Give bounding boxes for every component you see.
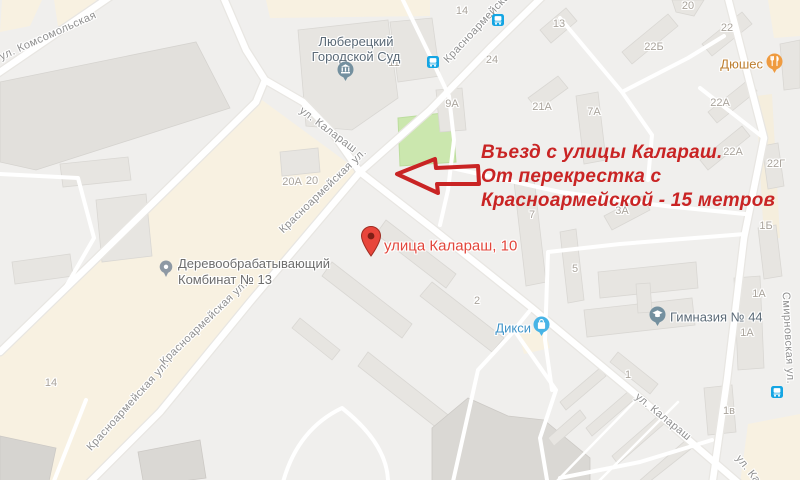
restaurant-poi-icon[interactable] (766, 53, 783, 79)
building-label: 9А (445, 98, 458, 110)
school-poi-icon[interactable] (649, 306, 666, 332)
poi-court-line1: Люберецкий (312, 34, 401, 49)
shopping-poi-icon[interactable] (533, 316, 550, 342)
bus-stop-icon[interactable] (492, 13, 504, 31)
building-label: 2 (474, 295, 480, 307)
building-label: 20 (682, 0, 694, 12)
building-label: 24 (486, 54, 498, 66)
entrance-annotation-line2: От перекрестка с (481, 165, 775, 189)
bus-stop-icon[interactable] (427, 55, 439, 73)
building-label: 7А (587, 106, 600, 118)
building-label: 20А (282, 176, 302, 188)
poi-label-court[interactable]: Люберецкий Городской Суд (312, 34, 401, 64)
map-canvas[interactable]: 14 13 20 22 22Б 9А 21А 7А 24 22А 22А 22Г… (0, 0, 800, 480)
building-label: 1в (723, 405, 735, 417)
poi-label-gymnasium[interactable]: Гимназия № 44 (670, 310, 763, 325)
building-label: 13 (553, 18, 565, 30)
bus-stop-icon[interactable] (771, 385, 783, 403)
marker-address-label: улица Калараш, 10 (384, 238, 517, 255)
building-label: 22А (710, 97, 730, 109)
poi-court-line2: Городской Суд (312, 49, 401, 64)
poi-label-dushes[interactable]: Дюшес (720, 57, 763, 72)
building-label: 22Б (644, 41, 663, 53)
entrance-annotation-line1: Въезд с улицы Калараш. (481, 141, 775, 165)
building-label: 21А (532, 101, 552, 113)
entrance-annotation: Въезд с улицы Калараш. От перекрестка с … (481, 141, 775, 213)
building-label: 14 (456, 5, 468, 17)
building-label: 20 (306, 175, 318, 187)
building-label: 1А (752, 288, 765, 300)
generic-poi-icon[interactable] (159, 260, 173, 283)
building-label: 22 (721, 22, 733, 34)
poi-plant-line2: Комбинат № 13 (178, 272, 330, 288)
building-label: 1Б (759, 220, 772, 232)
building-label: 14 (45, 377, 57, 389)
poi-label-plant[interactable]: Деревообрабатывающий Комбинат № 13 (178, 256, 330, 288)
court-poi-icon[interactable] (337, 61, 354, 87)
poi-plant-line1: Деревообрабатывающий (178, 256, 330, 272)
entrance-annotation-line3: Красноармейской - 15 метров (481, 189, 775, 213)
building-label: 5 (572, 263, 578, 275)
poi-label-dixy[interactable]: Дикси (495, 321, 531, 336)
building-label: 1 (625, 369, 631, 381)
red-marker-pin[interactable] (361, 226, 381, 262)
building-label: 1А (740, 327, 753, 339)
